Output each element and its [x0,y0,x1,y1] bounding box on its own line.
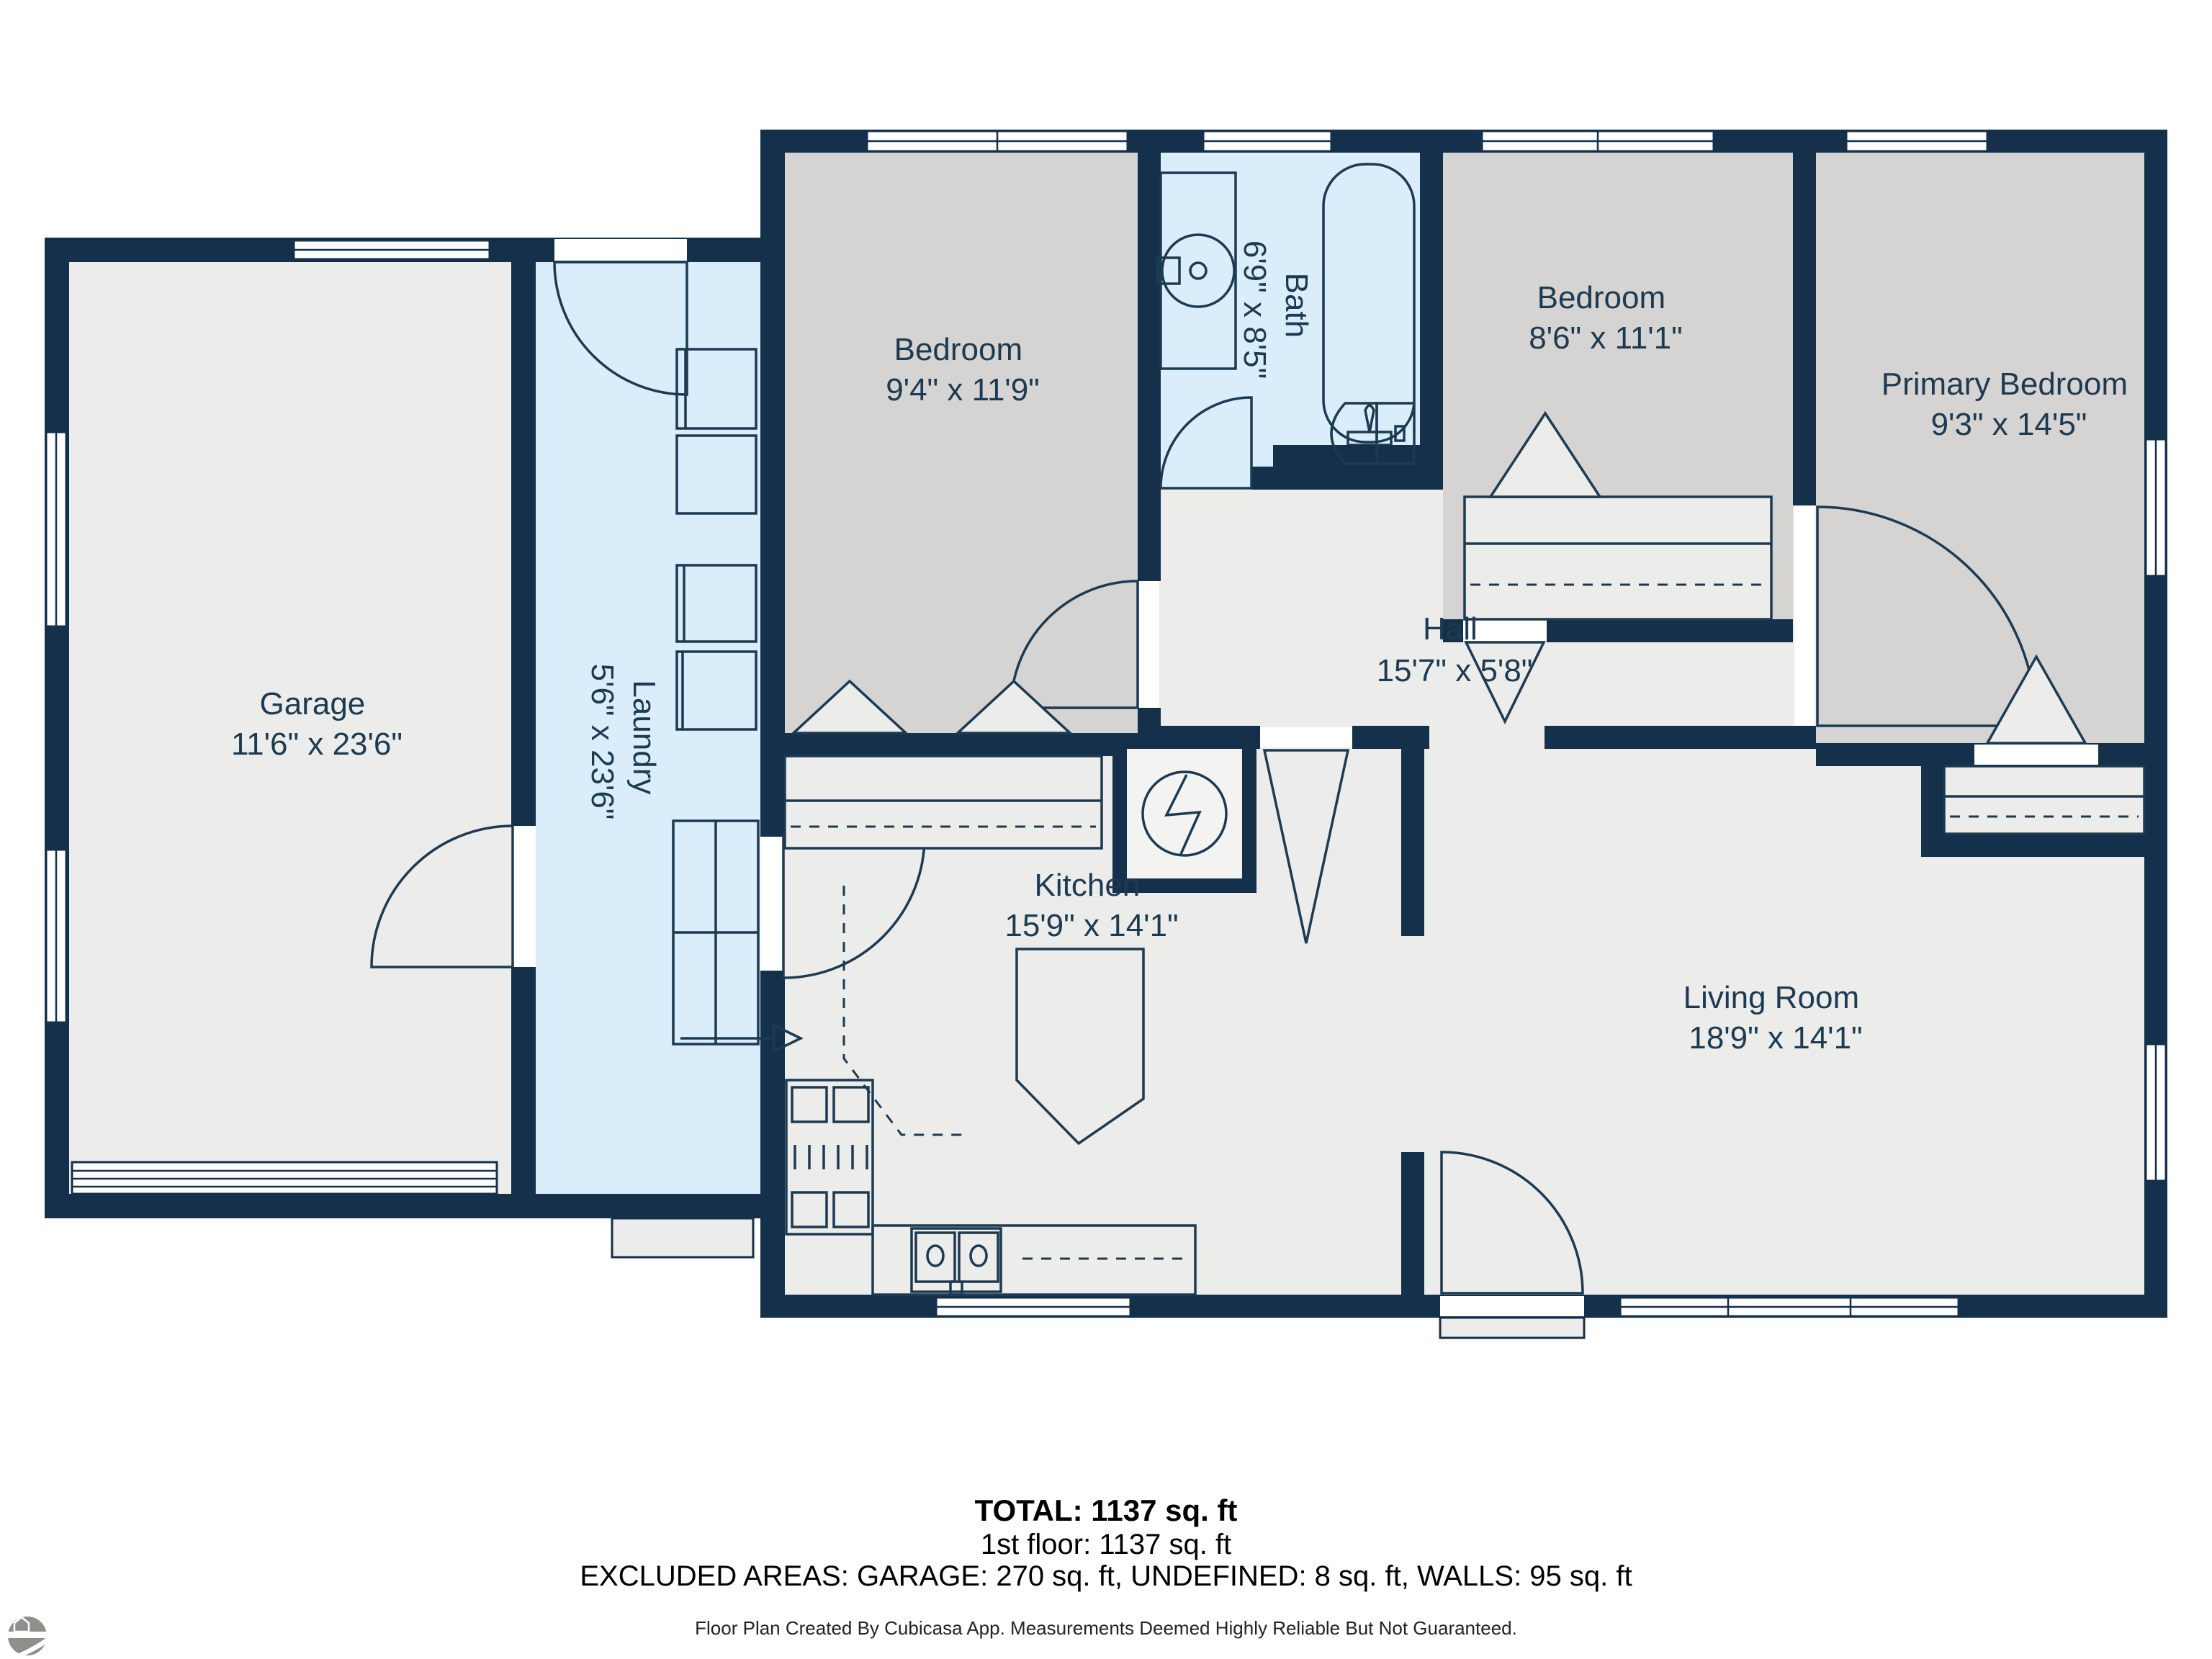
wall-hall-bottom-b [1352,726,1429,749]
wall-hall-bottom-c [1545,726,1816,749]
garage-door [72,1162,497,1194]
window-bath [1203,131,1331,151]
wall-main-left-lower [760,971,785,1295]
wall-bedroom1-right-lower [1138,708,1161,733]
summary-block: TOTAL: 1137 sq. ft 1st floor: 1137 sq. f… [580,1493,1632,1639]
kitchen-stove [786,1080,873,1234]
window-garage-top [294,240,490,259]
floor-plan-svg: Garage 11'6" x 23'6" Laundry 5'6" x 23'6… [0,0,2212,1659]
window-garage-left-lower [46,850,66,1022]
wall-kitchen-living-lower [1401,1152,1424,1295]
laundry-kitchen-threshold [762,837,783,971]
kitchen-door-threshold [1260,727,1352,747]
summary-disclaimer: Floor Plan Created By Cubicasa App. Meas… [695,1617,1517,1639]
window-kitchen-bottom [936,1298,1130,1316]
wall-primary-closet-bottom [1921,834,2167,857]
laundry-back-stoop [612,1218,753,1257]
wall-bedroom1-right-upper [1138,153,1161,581]
wall-wh-closet-top [1112,734,1256,749]
cubicasa-logo-icon [6,1617,49,1659]
summary-excluded: EXCLUDED AREAS: GARAGE: 270 sq. ft, UNDE… [580,1560,1632,1592]
window-bedroom2 [1482,131,1714,151]
window-primary-top [1846,131,1987,151]
wall-wh-closet-right [1242,734,1256,893]
garage-laundry-threshold [513,826,534,967]
wall-garage-bottom [45,1194,785,1218]
living-entry-stoop [1440,1318,1584,1338]
floor-plan-page: Garage 11'6" x 23'6" Laundry 5'6" x 23'6… [0,0,2212,1659]
wall-bedroom2-primary-upper [1793,153,1816,505]
wall-kitchen-living-upper [1401,749,1424,936]
summary-floor: 1st floor: 1137 sq. ft [981,1529,1231,1560]
primary-closet-threshold [1974,745,2098,765]
window-bedroom1 [867,131,1128,151]
wall-main-left-upper [760,130,785,837]
window-primary-right [2146,439,2166,576]
wall-bath-bottom [1251,467,1443,490]
summary-total: TOTAL: 1137 sq. ft [975,1493,1238,1527]
bedroom1-door-threshold [1139,581,1159,708]
window-living-right [2146,1044,2166,1181]
wall-bedroom1-bottom [785,733,1161,756]
wall-garage-laundry-lower [511,967,536,1194]
primary-door-threshold [1794,505,1815,726]
wall-garage-left [45,238,69,1218]
water-heater [1127,749,1242,878]
window-living-bottom [1620,1298,1959,1316]
hall-living-opening [1429,727,1545,747]
wall-bath-right [1420,153,1443,490]
laundry-entry-threshold [554,239,687,261]
window-garage-left-upper [46,432,66,626]
wall-garage-laundry-upper [511,262,536,826]
living-entry-threshold [1440,1296,1584,1316]
wall-bedroom2-bottom-b [1547,619,1793,642]
